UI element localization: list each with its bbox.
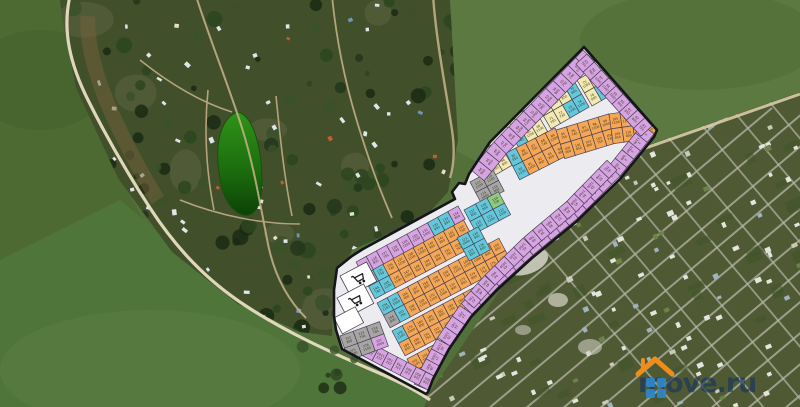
parcel[interactable] bbox=[485, 328, 502, 346]
parcel-label: 109850 bbox=[614, 132, 621, 140]
parcel-label: 213850 bbox=[448, 354, 457, 363]
parcel[interactable] bbox=[474, 334, 491, 352]
parcel[interactable] bbox=[464, 339, 481, 357]
parcel-label: 110800 bbox=[625, 130, 632, 138]
satellite-map-view: 1348001357501367401371200138110013910001… bbox=[0, 0, 800, 407]
parcel-label: 208740 bbox=[472, 326, 481, 335]
parcel[interactable] bbox=[478, 316, 495, 334]
parcel[interactable] bbox=[454, 344, 471, 362]
parcel-label: 2171200 bbox=[488, 332, 498, 342]
parcel-label: 2091200 bbox=[481, 320, 491, 330]
parcel[interactable] bbox=[500, 284, 517, 302]
parcel-label: 214800 bbox=[458, 349, 467, 358]
parcel-label: 207750 bbox=[462, 331, 471, 340]
parcel-label: 216740 bbox=[479, 338, 488, 347]
parcel[interactable] bbox=[468, 321, 485, 339]
parcel-label: 198800 bbox=[494, 294, 503, 303]
parcel-label: 215750 bbox=[468, 343, 477, 352]
plot-plan-overlay[interactable]: 1348001357501367401371200138110013910001… bbox=[0, 0, 800, 407]
parcel-label: 199750 bbox=[504, 288, 513, 297]
